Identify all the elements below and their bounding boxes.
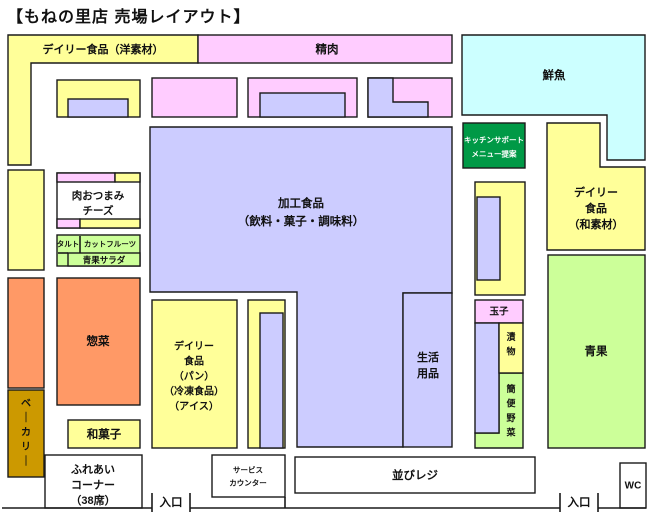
- block-kitchen-support: [463, 123, 525, 168]
- label-meat-snacks: 肉おつまみ: [72, 189, 125, 202]
- label-service-counter: カウンター: [229, 478, 267, 488]
- label-daily-bread: （アイス）: [169, 400, 219, 413]
- label-tart-label: タルト: [57, 239, 80, 249]
- label-bakery: カ: [21, 427, 31, 439]
- label-eggs: 玉子: [489, 307, 509, 318]
- block-pickles-shelf: [475, 323, 499, 433]
- label-meat: 精肉: [316, 42, 339, 56]
- label-kitchen-support: メニュー提案: [472, 149, 517, 159]
- label-simple-vegetables: 野: [506, 413, 515, 423]
- label-entrance-left-label: 入口: [160, 496, 183, 509]
- block-right-shelf-inner: [477, 197, 500, 280]
- label-produce-salad: 青果サラダ: [83, 255, 126, 265]
- label-kitchen-support: キッチンサポート: [464, 135, 524, 145]
- label-pickles: 物: [506, 346, 515, 357]
- label-household-goods: 生活: [417, 350, 439, 364]
- label-community-corner: （38席）: [70, 493, 115, 507]
- label-simple-vegetables: 便: [506, 398, 516, 409]
- label-daily-japanese: 食品: [585, 201, 607, 215]
- block-shelf-a-inner: [68, 99, 128, 117]
- label-toilet: WC: [625, 481, 642, 492]
- label-checkout: 並びレジ: [392, 468, 438, 482]
- block-meat-snacks-strip-bl: [57, 219, 80, 228]
- label-daily-bread: 食品: [183, 355, 204, 368]
- block-meat-snacks-strip-tr: [115, 173, 140, 182]
- floor-plan: デイリー食品（洋素材）精肉鮮魚加工食品（飲料・菓子・調味料）生活用品キッチンサポ…: [0, 0, 650, 516]
- label-processed-food: （飲料・菓子・調味料）: [238, 214, 365, 228]
- label-bakery: リ: [21, 441, 31, 453]
- label-simple-vegetables: 簡: [506, 383, 515, 394]
- block-center-shelf-inner: [260, 313, 283, 448]
- label-household-goods: 用品: [417, 367, 439, 380]
- block-meat-snacks-strip-br: [80, 219, 140, 228]
- label-community-corner: ふれあい: [71, 463, 115, 476]
- label-daily-japanese: デイリー: [574, 185, 618, 199]
- label-meat-snacks: チーズ: [83, 204, 114, 217]
- label-simple-vegetables: 菜: [505, 427, 516, 438]
- block-shelf-c-inner: [260, 93, 345, 117]
- label-prepared-food: 惣菜: [87, 334, 110, 348]
- label-community-corner: コーナー: [71, 479, 115, 492]
- label-pickles: 漬: [506, 331, 516, 342]
- label-service-counter: サービス: [233, 465, 263, 475]
- label-daily-bread: （冷凍食品）: [164, 385, 224, 398]
- label-cut-fruit-label: カットフルーツ: [84, 240, 136, 249]
- label-daily-japanese: （和素材）: [569, 217, 624, 231]
- block-shelf-b: [152, 78, 237, 117]
- label-bakery: ｜: [21, 411, 31, 424]
- block-left-strip: [8, 278, 44, 388]
- label-bakery: ベ: [21, 398, 31, 410]
- label-produce: 青果: [585, 344, 608, 358]
- block-left-shelf-2: [8, 170, 44, 270]
- store-layout-canvas: 【もねの里店 売場レイアウト】 デイリー食品（洋素材）精肉鮮魚加工食品（飲料・菓…: [0, 0, 650, 516]
- label-japanese-sweets: 和菓子: [87, 427, 122, 441]
- block-meat-snacks-strip-tl: [57, 173, 115, 182]
- label-daily-bread: デイリー: [174, 340, 214, 353]
- block-service-counter: [212, 455, 285, 497]
- label-daily-bread: （パン）: [174, 370, 215, 383]
- label-daily-west: デイリー食品（洋素材）: [43, 42, 164, 56]
- label-bakery: ｜: [21, 455, 31, 468]
- label-fresh-fish: 鮮魚: [543, 68, 566, 82]
- label-processed-food: 加工食品: [277, 196, 324, 210]
- label-entrance-right-label: 入口: [568, 496, 591, 509]
